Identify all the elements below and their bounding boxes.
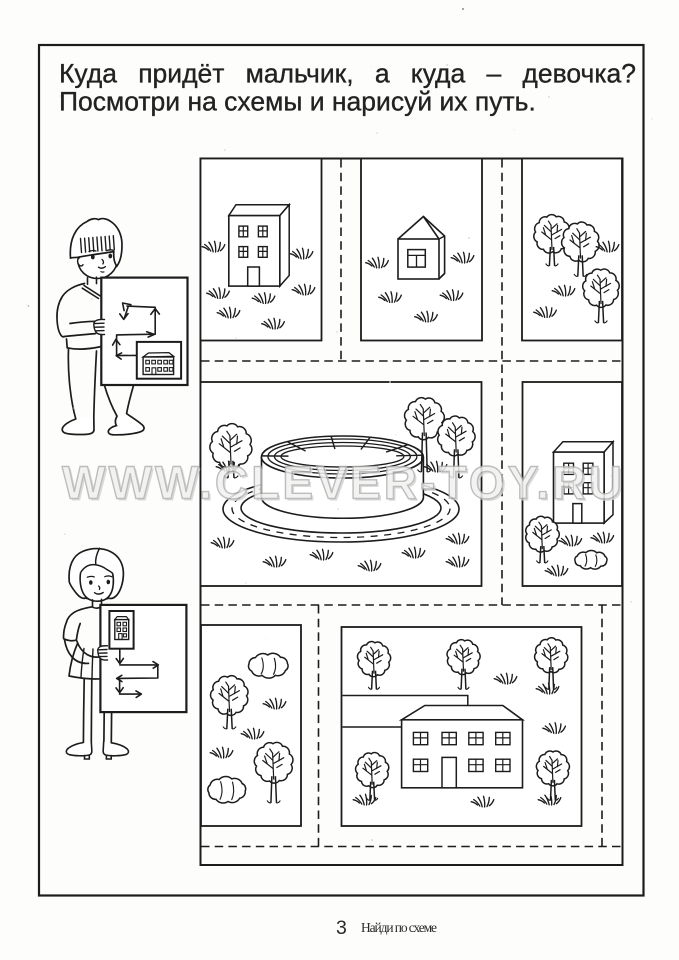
svg-text:–: –: [487, 58, 502, 88]
svg-text:мальчик,: мальчик,: [246, 58, 354, 88]
svg-text:Найди по схеме: Найди по схеме: [361, 920, 437, 935]
svg-text:WWW.CLEVER-TOY.RU: WWW.CLEVER-TOY.RU: [62, 457, 625, 509]
svg-text:девочка?: девочка?: [522, 58, 636, 88]
svg-text:а: а: [375, 58, 390, 88]
svg-text:куда: куда: [411, 58, 466, 88]
svg-text:Посмотри на схемы и нарисуй их: Посмотри на схемы и нарисуй их путь.: [59, 86, 536, 116]
svg-text:Куда: Куда: [59, 58, 117, 88]
svg-text:придёт: придёт: [138, 58, 224, 88]
svg-text:3: 3: [336, 917, 347, 939]
